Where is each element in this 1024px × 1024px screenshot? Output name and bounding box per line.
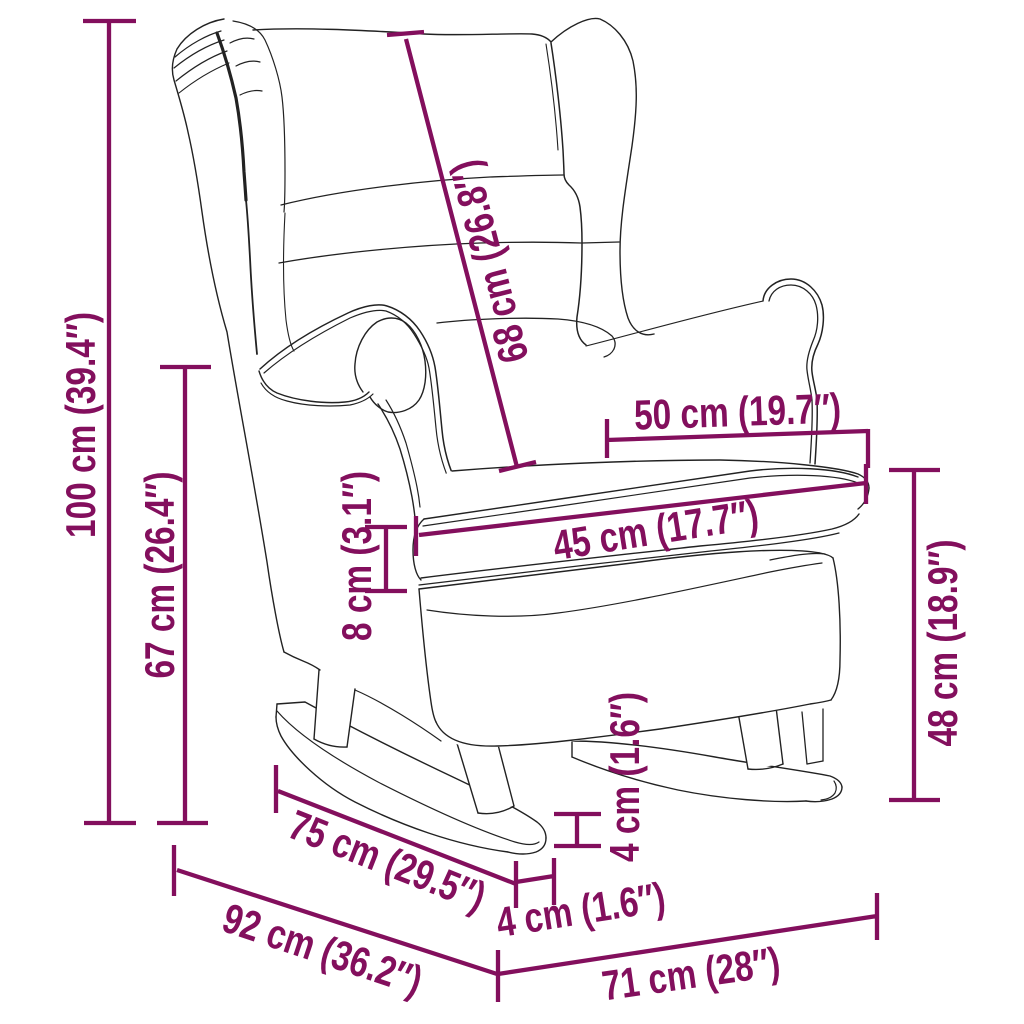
svg-text:48 cm (18.9″): 48 cm (18.9″) (919, 540, 966, 747)
svg-text:50 cm (19.7″): 50 cm (19.7″) (633, 384, 842, 438)
svg-text:4 cm (1.6″): 4 cm (1.6″) (601, 692, 648, 862)
svg-text:8 cm (3.1″): 8 cm (3.1″) (333, 471, 380, 641)
svg-text:67 cm (26.4″): 67 cm (26.4″) (136, 472, 183, 679)
svg-text:100 cm (39.4″): 100 cm (39.4″) (57, 312, 104, 538)
